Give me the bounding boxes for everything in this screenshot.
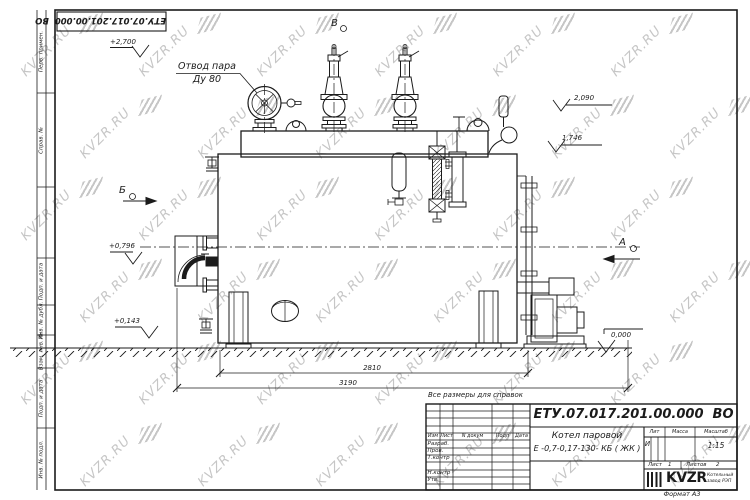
- supports: [226, 291, 501, 348]
- margin-label-inv-podl: Инв. № подл.: [37, 417, 46, 500]
- margin-label-sprav-no: Справ. №: [37, 98, 46, 182]
- tb-col-podp: Подп: [492, 434, 513, 439]
- product-name-line2: Е -0,7-0,17-130- КБ ( ЖК ): [532, 445, 642, 453]
- tb-role-tkontr: Т.контр: [428, 456, 450, 462]
- tb-col-izm: Изм: [426, 434, 440, 439]
- product-name-line1: Котел паровой: [532, 432, 642, 441]
- tb-scale-value: 1:15: [695, 442, 737, 450]
- steam-outlet-label-line1: Отвод пара: [174, 62, 240, 72]
- elevation-plus2700: +2,700: [110, 39, 136, 46]
- elevation-marks: [110, 45, 643, 352]
- tb-lit-value: И: [644, 441, 651, 448]
- lifting-lugs: [286, 117, 489, 131]
- tb-sheets-label: Листов: [686, 463, 707, 469]
- elevation-0000: 0,000: [611, 332, 631, 339]
- pressure-gauge-siphon: [489, 96, 517, 153]
- safety-valve-1: [321, 45, 348, 134]
- doc-number-flipped: ЕТУ.07.017.201.00.000 ВО: [57, 15, 166, 24]
- elevation-plus0796: +0,796: [109, 243, 135, 250]
- dimension-lines: [173, 288, 632, 392]
- tb-role-nkontr: Н.контр: [428, 471, 451, 477]
- kvzr-logo-subtext-1: Котельный: [707, 474, 733, 479]
- water-level-gauge: [388, 131, 466, 222]
- elevation-2090: 2,090: [574, 95, 594, 102]
- steam-outlet-label-line2: Ду 80: [174, 75, 240, 85]
- tb-sheet-label: Лист: [648, 463, 662, 469]
- tb-col-ndokum: N докум: [453, 434, 492, 439]
- safety-valve-2: [392, 45, 419, 134]
- tb-role-razrab: Разраб.: [428, 442, 450, 448]
- tb-lit-label: Лит: [644, 430, 665, 435]
- elevation-plus0143: +0,143: [114, 318, 140, 325]
- ground-line: [10, 348, 632, 357]
- view-label-v: В: [331, 19, 338, 30]
- front-smokebox-burner: [175, 157, 219, 333]
- kvzr-logo-text: KVZR: [666, 470, 707, 486]
- kvzr-logo-icon: [647, 472, 664, 487]
- manhole: [272, 301, 299, 322]
- tb-mass-label: Масса: [665, 430, 695, 435]
- drawing-sheet: KVZR.RUKVZR.RUKVZR.RUKVZR.RUKVZR.RUKVZR.…: [0, 0, 750, 500]
- elevation-1746: 1,746: [562, 135, 582, 142]
- boiler-body: [140, 131, 640, 343]
- dim-3190: 3190: [326, 380, 370, 387]
- flue-fan-unit: [517, 278, 586, 348]
- tb-sheet-value: 1: [668, 463, 672, 469]
- view-label-a: А: [619, 238, 626, 249]
- dim-2810: 2810: [350, 365, 394, 372]
- tb-sheets-value: 2: [716, 463, 720, 469]
- margin-label-perv-primen: Перв. примен.: [37, 10, 46, 94]
- rear-downcomer-pipe: [517, 176, 537, 335]
- tb-role-utv: Утв.: [428, 478, 440, 484]
- tb-role-prov: Пров.: [428, 449, 444, 455]
- view-label-b: Б: [119, 186, 126, 197]
- kvzr-logo-subtext-2: завод РЭП: [707, 480, 731, 485]
- tb-col-data: Дата: [513, 434, 530, 439]
- tb-col-list: Лист: [440, 434, 453, 439]
- reference-note: Все размеры для справок: [428, 392, 523, 399]
- doc-number: ЕТУ.07.017.201.00.000 ВО: [530, 408, 737, 422]
- format-note: Формат А3: [627, 491, 737, 498]
- tb-scale-label: Масштаб: [695, 430, 737, 435]
